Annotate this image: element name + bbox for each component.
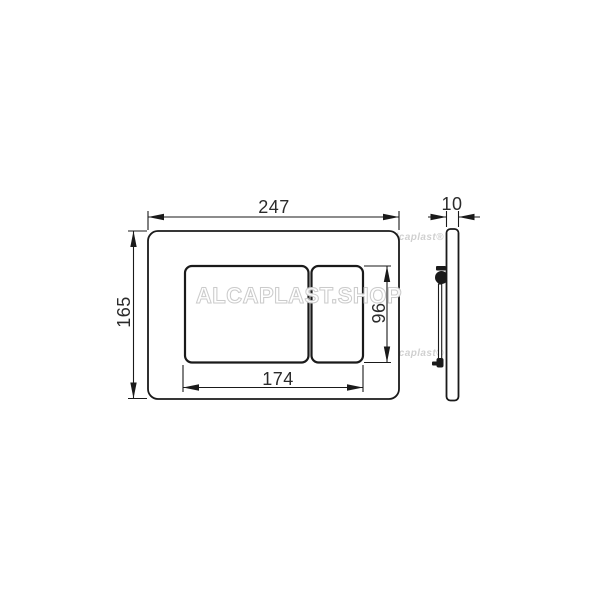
mount-lever [436, 266, 446, 271]
arrowhead-left-icon [459, 214, 475, 220]
arrowhead-left-icon [148, 214, 164, 220]
arrowhead-down-icon [130, 383, 136, 399]
side-view [432, 229, 459, 401]
dim-label-thickness: 10 [441, 195, 462, 213]
dim-label-overall-height: 165 [115, 296, 133, 328]
large-flush-button [185, 266, 309, 363]
dim-label-buttons-width: 174 [262, 370, 294, 388]
mount-rod [439, 284, 442, 360]
watermark-large: ALCAPLAST.SHOP [196, 285, 402, 307]
plate-profile [447, 229, 459, 401]
dim-label-overall-width: 247 [258, 198, 290, 216]
mount-clip-tab [432, 362, 438, 366]
arrowhead-right-icon [431, 214, 447, 220]
technical-drawing-canvas: Alcaplast® Alcaplast® Alcaplast® Alcapla… [0, 0, 600, 600]
small-flush-button [312, 266, 364, 363]
arrowhead-up-icon [130, 231, 136, 247]
arrowhead-right-icon [383, 214, 399, 220]
mount-clip [437, 358, 444, 368]
